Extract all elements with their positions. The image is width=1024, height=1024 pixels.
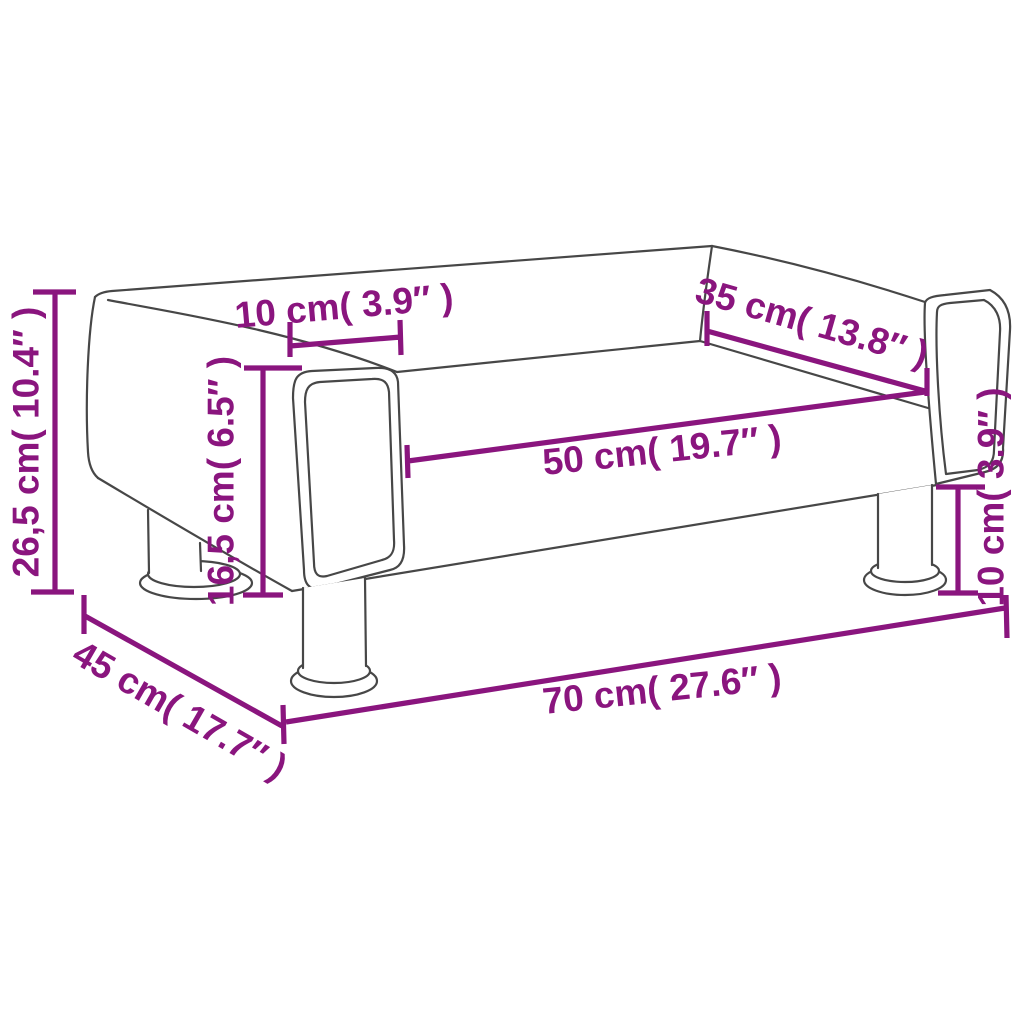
left-armrest-seam [305, 379, 394, 577]
dim-label-total-width: 70 cm( 27.6″ ) [541, 656, 784, 722]
dim-label-total-height: 26,5 cm( 10.4″ ) [6, 307, 47, 578]
front-left-leg-body [303, 578, 366, 668]
sofa-left-edge [87, 297, 98, 478]
sofa-dimension-drawing: 26,5 cm( 10.4″ ) 10 cm( 3.9″ ) 35 cm( 13… [0, 0, 1024, 1024]
dim-label-total-depth: 45 cm( 17.7″ ) [66, 632, 294, 787]
sofa-seat-back-line [397, 341, 700, 372]
front-right-leg [864, 485, 946, 595]
product-dimension-diagram: 26,5 cm( 10.4″ ) 10 cm( 3.9″ ) 35 cm( 13… [0, 0, 1024, 1024]
front-left-leg [291, 578, 377, 697]
dim-label-seat-height: 16,5 cm( 6.5″ ) [201, 356, 242, 606]
front-right-leg-body [878, 485, 932, 568]
sofa-front-bottom-edge [292, 485, 937, 591]
dim-label-leg-height: 10 cm( 3.9″ ) [971, 387, 1012, 606]
dim-label-armrest-width: 10 cm( 3.9″ ) [233, 276, 455, 336]
rear-left-leg-body [148, 510, 201, 573]
